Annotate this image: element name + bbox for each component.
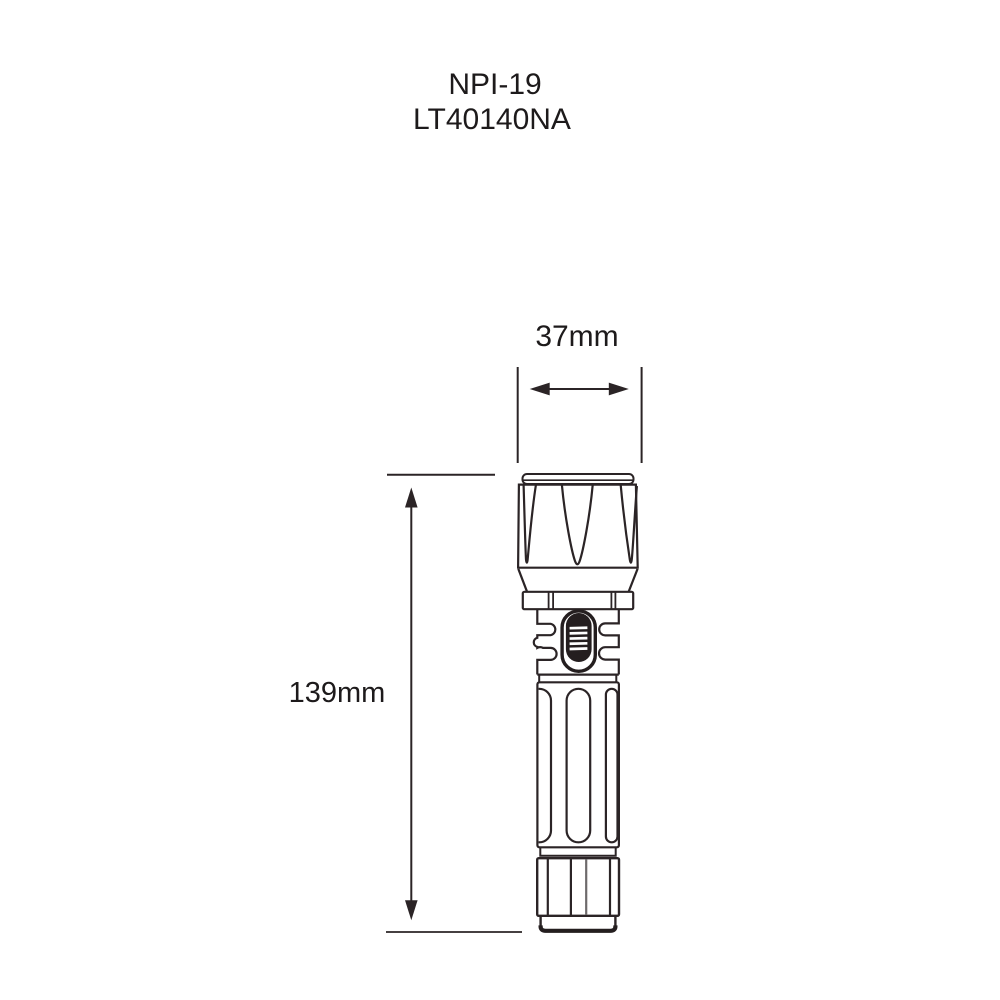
svg-text:LT40140NA: LT40140NA xyxy=(413,103,571,136)
svg-text:NPI-19: NPI-19 xyxy=(448,68,541,101)
svg-text:139mm: 139mm xyxy=(289,677,386,709)
svg-text:37mm: 37mm xyxy=(535,320,618,353)
